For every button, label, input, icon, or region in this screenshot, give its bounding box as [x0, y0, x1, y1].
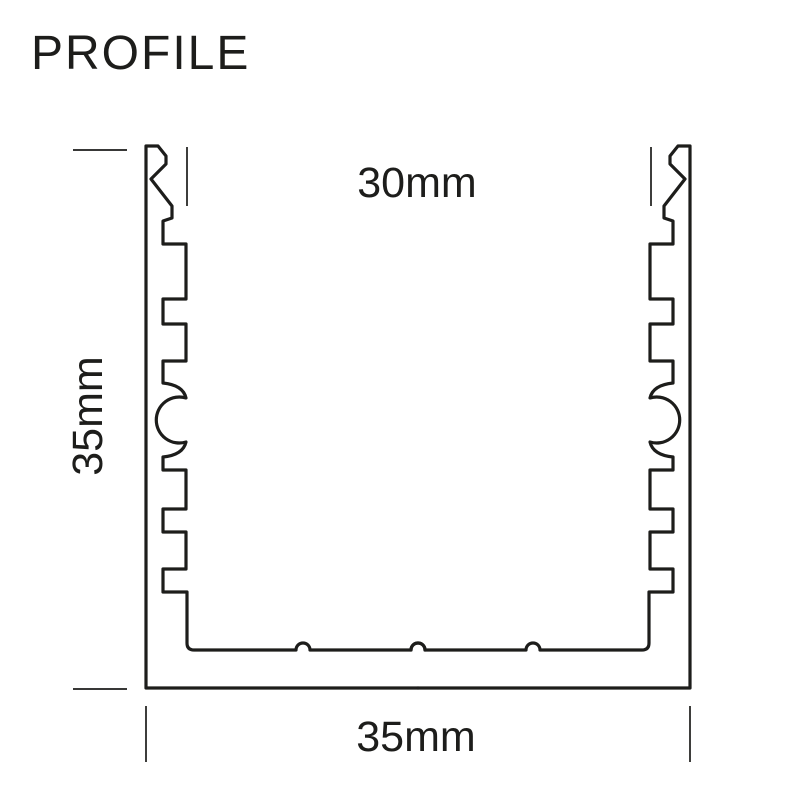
- profile-cross-section-drawing: [0, 0, 800, 800]
- height-dimension-label: 35mm: [65, 316, 111, 516]
- profile-outline-right: [411, 146, 690, 688]
- outer-width-dimension-label: 35mm: [316, 714, 516, 760]
- inner-width-dimension-label: 30mm: [317, 160, 517, 206]
- profile-outline-left: [146, 146, 425, 688]
